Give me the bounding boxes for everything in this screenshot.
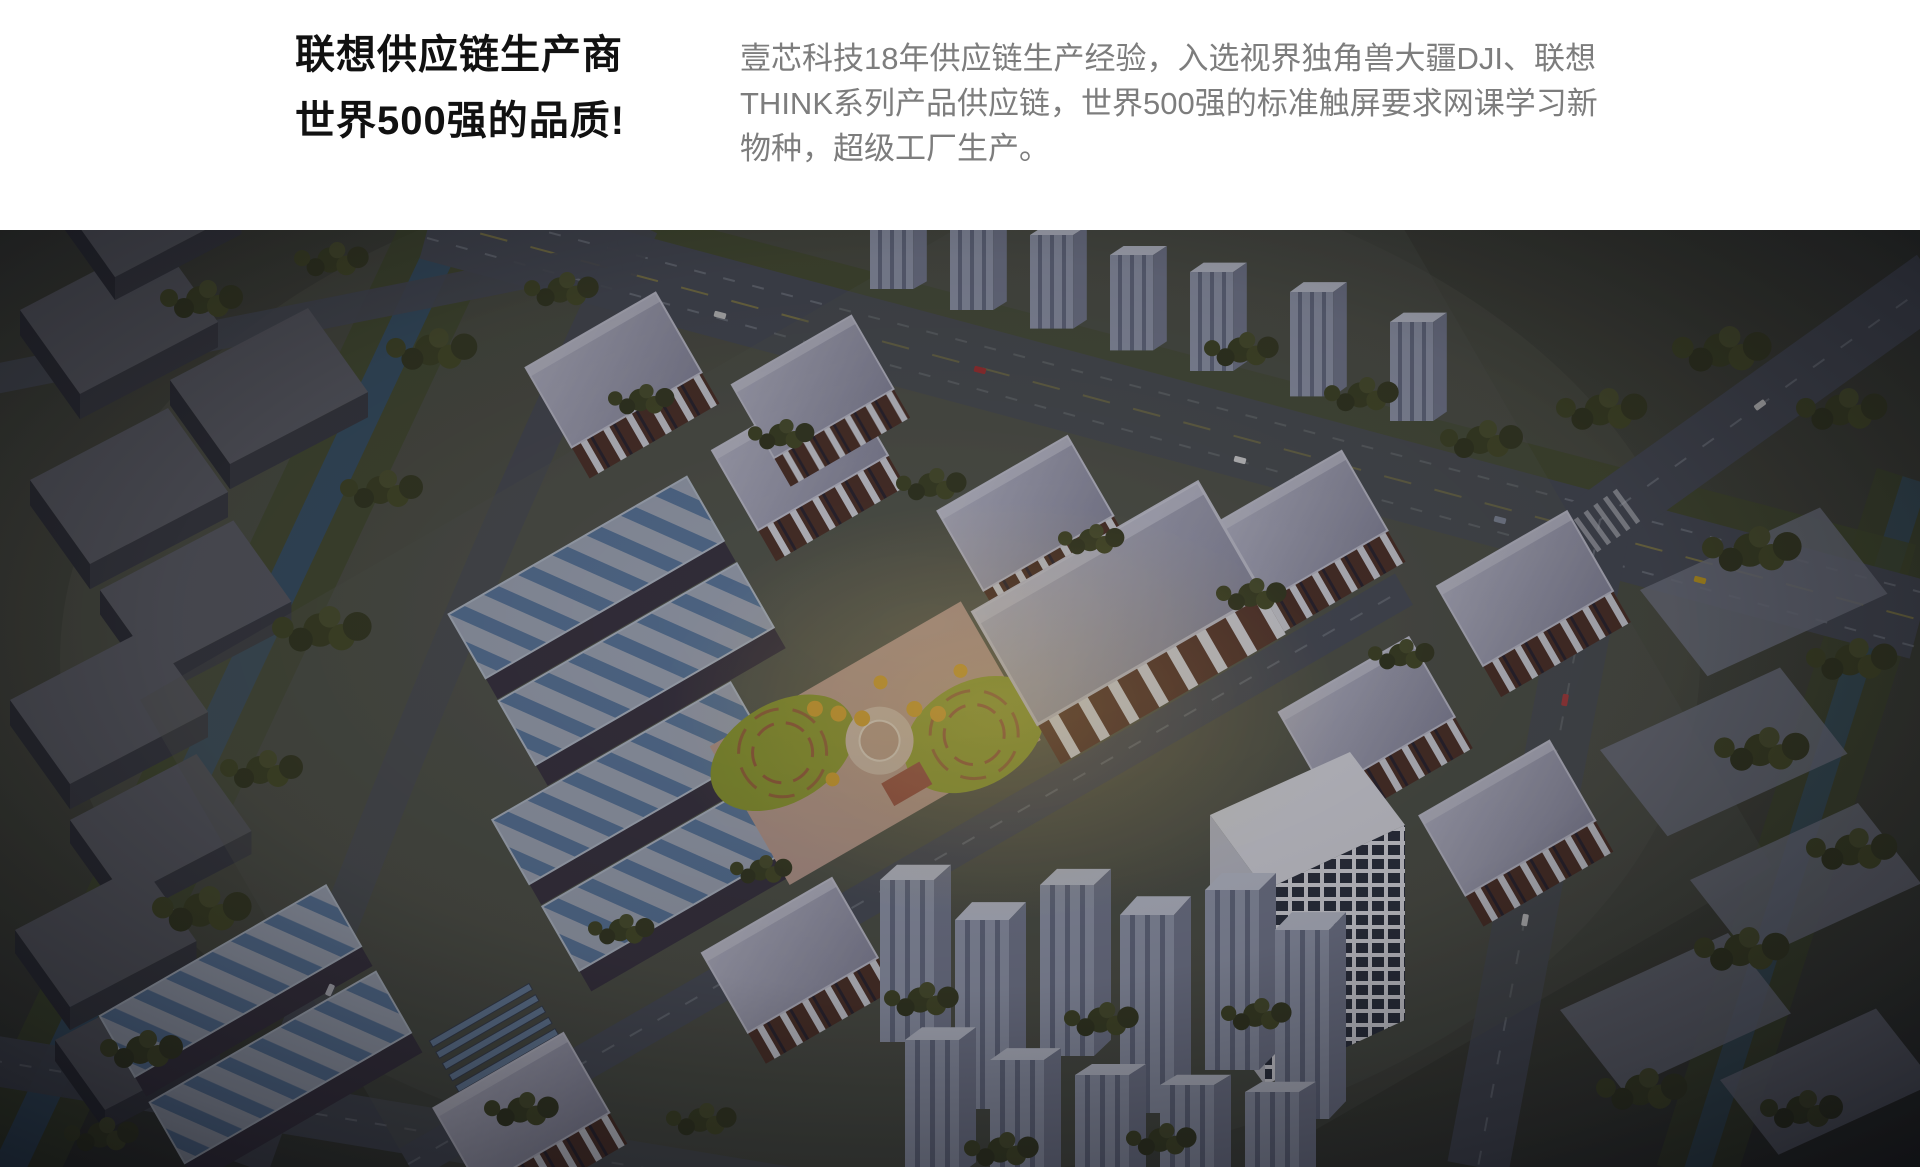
hero-description-line-3: 物种，超级工厂生产。 [740,126,1680,171]
industrial-park-aerial-image [0,230,1920,1167]
hero-header: 联想供应链生产商 世界500强的品质! 壹芯科技18年供应链生产经验，入选视界独… [0,0,1920,230]
hero-title-line-2: 世界500强的品质! [295,88,625,154]
hero-description: 壹芯科技18年供应链生产经验，入选视界独角兽大疆DJI、联想 THINK系列产品… [740,36,1680,171]
vignette [0,230,1920,1167]
hero-title-line-1: 联想供应链生产商 [295,22,625,88]
hero-title: 联想供应链生产商 世界500强的品质! [295,22,625,154]
hero-description-line-1: 壹芯科技18年供应链生产经验，入选视界独角兽大疆DJI、联想 [740,36,1680,81]
landing-section: 联想供应链生产商 世界500强的品质! 壹芯科技18年供应链生产经验，入选视界独… [0,0,1920,1167]
hero-description-line-2: THINK系列产品供应链，世界500强的标准触屏要求网课学习新 [740,81,1680,126]
